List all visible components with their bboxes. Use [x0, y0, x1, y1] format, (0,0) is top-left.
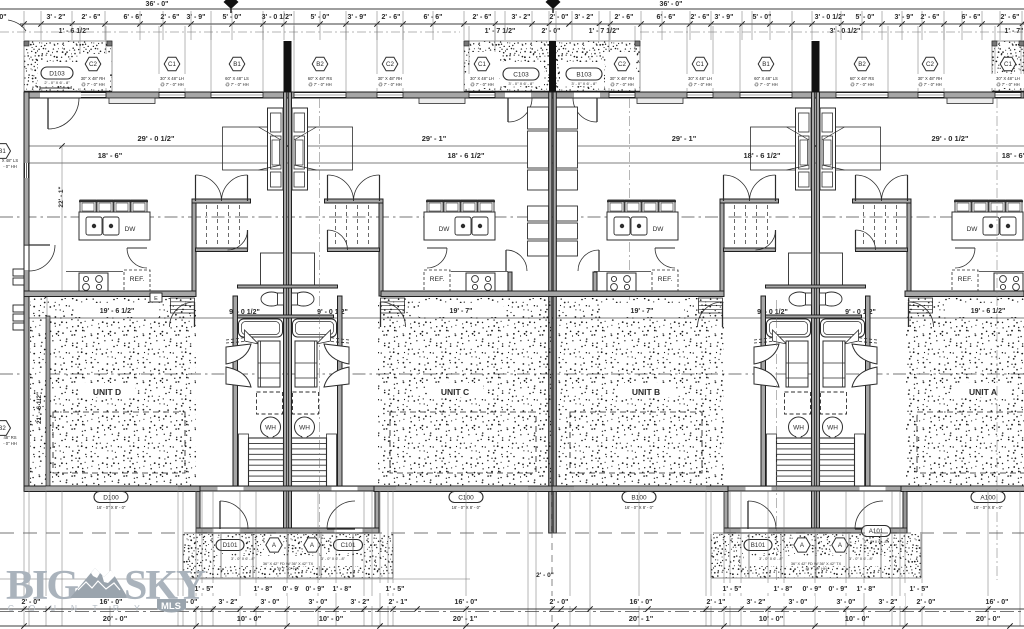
- svg-text:0' - 9": 0' - 9": [306, 586, 325, 593]
- svg-text:@ 7' - 0" HH: @ 7' - 0" HH: [160, 82, 183, 87]
- svg-text:30" X 48" RH: 30" X 48" RH: [81, 76, 106, 81]
- svg-text:3' - 2": 3' - 2": [879, 599, 898, 606]
- svg-text:@ 7' - 0" HH: @ 7' - 0" HH: [308, 82, 331, 87]
- svg-text:1' - 7 1/2": 1' - 7 1/2": [589, 28, 620, 35]
- svg-text:20' - 0": 20' - 0": [976, 614, 1001, 623]
- svg-text:@ 7' - 0" HH: @ 7' - 0" HH: [81, 82, 104, 87]
- svg-text:3' - 0": 3' - 0": [789, 599, 808, 606]
- svg-text:UNIT B: UNIT B: [632, 387, 660, 397]
- svg-text:@ 7' - 0" HH: @ 7' - 0" HH: [610, 82, 633, 87]
- svg-text:REF.: REF.: [130, 276, 145, 283]
- svg-text:16' - 0": 16' - 0": [455, 599, 478, 606]
- svg-text:C1: C1: [168, 61, 176, 68]
- svg-text:3' - 9": 3' - 9": [895, 14, 914, 21]
- svg-text:2' - 0": 2' - 0": [917, 599, 936, 606]
- svg-text:3' - 0" X 6' - 8": 3' - 0" X 6' - 8": [849, 557, 874, 561]
- svg-text:D103: D103: [49, 70, 65, 77]
- svg-text:20' - 0": 20' - 0": [103, 614, 128, 623]
- svg-text:20' - 1": 20' - 1": [453, 614, 478, 623]
- svg-text:60" X 48" RS: 60" X 48" RS: [850, 76, 875, 81]
- svg-text:B101: B101: [751, 542, 766, 549]
- svg-text:1' - 5": 1' - 5": [386, 586, 405, 593]
- svg-text:3' - 2": 3' - 2": [351, 599, 370, 606]
- svg-text:2' - 6": 2' - 6": [382, 14, 401, 21]
- svg-text:3' - 0" X 6' - 8": 3' - 0" X 6' - 8": [759, 557, 784, 561]
- svg-text:E: E: [154, 296, 158, 302]
- svg-text:@ 7' - 0" HH: @ 7' - 0" HH: [918, 82, 941, 87]
- svg-text:10' - 0": 10' - 0": [845, 614, 870, 623]
- svg-text:@ 7' - 0" HH: @ 7' - 0" HH: [470, 82, 493, 87]
- svg-text:@ 7' - 0" HH: @ 7' - 0" HH: [378, 82, 401, 87]
- svg-text:2' - 6": 2' - 6": [82, 14, 101, 21]
- svg-text:@ 7' - 0" HH: @ 7' - 0" HH: [225, 82, 248, 87]
- svg-text:REF.: REF.: [430, 276, 445, 283]
- svg-text:6' - 6": 6' - 6": [657, 14, 676, 21]
- svg-text:2' - 6": 2' - 6": [161, 14, 180, 21]
- svg-text:6' - 6": 6' - 6": [962, 14, 981, 21]
- svg-text:C101: C101: [341, 542, 356, 549]
- svg-text:60" X 48" RS: 60" X 48" RS: [308, 76, 333, 81]
- svg-text:5' - 0": 5' - 0": [753, 14, 772, 21]
- svg-text:C2: C2: [386, 61, 394, 68]
- svg-text:3' - 9": 3' - 9": [715, 14, 734, 21]
- svg-text:1' - 5": 1' - 5": [723, 586, 742, 593]
- svg-text:22' - 1": 22' - 1": [58, 186, 65, 207]
- svg-text:3' - 0 1/2": 3' - 0 1/2": [262, 14, 293, 21]
- svg-text:C103: C103: [513, 71, 529, 78]
- svg-text:WH: WH: [265, 424, 276, 431]
- svg-text:60" X 48" LS: 60" X 48" LS: [754, 76, 778, 81]
- svg-text:1' - 8": 1' - 8": [333, 586, 352, 593]
- svg-text:3' - 0" X 6' - 8": 3' - 0" X 6' - 8": [864, 540, 889, 544]
- svg-text:3' - 0" X 6' - 8": 3' - 0" X 6' - 8": [231, 557, 256, 561]
- svg-text:30" X 48" RH: 30" X 48" RH: [610, 76, 635, 81]
- svg-text:D100: D100: [103, 494, 119, 501]
- svg-text:C2: C2: [89, 61, 97, 68]
- svg-text:5' - 0": 5' - 0": [856, 14, 875, 21]
- svg-text:B1: B1: [762, 61, 770, 68]
- svg-text:30" X 48" RH: 30" X 48" RH: [378, 76, 403, 81]
- svg-text:30" X 48" RH: 30" X 48" RH: [918, 76, 943, 81]
- svg-text:B1: B1: [0, 148, 6, 155]
- svg-text:16' - 0" X 8' - 0": 16' - 0" X 8' - 0": [625, 505, 654, 510]
- svg-text:2' - 6": 2' - 6": [691, 14, 710, 21]
- svg-text:30" X 48" LH: 30" X 48" LH: [688, 76, 712, 81]
- svg-text:3' - 0" X 6' - 8": 3' - 0" X 6' - 8": [321, 557, 346, 561]
- svg-text:0' - 9": 0' - 9": [829, 586, 848, 593]
- svg-text:19' - 7": 19' - 7": [631, 308, 654, 315]
- svg-text:REF.: REF.: [658, 276, 673, 283]
- svg-text:16' - 0": 16' - 0": [986, 599, 1009, 606]
- svg-text:B2: B2: [316, 61, 324, 68]
- svg-text:3' - 2": 3' - 2": [575, 14, 594, 21]
- svg-text:@ 7' - 0" HH: @ 7' - 0" HH: [996, 82, 1019, 87]
- svg-text:C: C: [8, 603, 14, 613]
- svg-text:DW: DW: [653, 226, 665, 233]
- svg-text:R: R: [113, 603, 119, 613]
- svg-text:A101: A101: [869, 528, 884, 535]
- svg-text:- 0" HH: - 0" HH: [3, 441, 17, 446]
- svg-text:- 0" HH: - 0" HH: [3, 164, 17, 169]
- svg-text:29' - 0 1/2": 29' - 0 1/2": [137, 134, 174, 143]
- svg-text:B103: B103: [576, 71, 592, 78]
- svg-text:@ 7' - 0" HH: @ 7' - 0" HH: [754, 82, 777, 87]
- svg-text:16' - 0" X 8' - 0": 16' - 0" X 8' - 0": [97, 505, 126, 510]
- svg-text:2' - 6": 2' - 6": [921, 14, 940, 21]
- svg-text:10' - 0": 10' - 0": [759, 614, 784, 623]
- svg-text:19' - 6 1/2": 19' - 6 1/2": [971, 308, 1006, 315]
- svg-text:18' - 6 1/2": 18' - 6 1/2": [743, 151, 780, 160]
- svg-text:16' - 0" X 8' - 0": 16' - 0" X 8' - 0": [452, 505, 481, 510]
- svg-text:30" X 48" LH: 30" X 48" LH: [996, 76, 1020, 81]
- svg-text:UNIT C: UNIT C: [441, 387, 469, 397]
- svg-text:2' - 6": 2' - 6": [615, 14, 634, 21]
- svg-text:1' - 7": 1' - 7": [1005, 28, 1024, 35]
- svg-text:29' - 1": 29' - 1": [672, 134, 697, 143]
- svg-text:WH: WH: [827, 424, 838, 431]
- svg-text:29' - 1": 29' - 1": [422, 134, 447, 143]
- svg-text:D101: D101: [223, 542, 238, 549]
- svg-text:2' - 0": 2' - 0": [550, 599, 569, 606]
- svg-text:1' - 8": 1' - 8": [857, 586, 876, 593]
- svg-text:18' - 6": 18' - 6": [98, 151, 123, 160]
- svg-text:X 48" LS: X 48" LS: [2, 158, 19, 163]
- svg-text:10' - 0": 10' - 0": [319, 614, 344, 623]
- svg-text:36' - 0": 36' - 0": [146, 1, 169, 8]
- svg-text:2' - 6": 2' - 6": [1001, 14, 1020, 21]
- svg-text:1' - 5": 1' - 5": [910, 586, 929, 593]
- svg-text:3' - 0" X 6' - 8": 3' - 0" X 6' - 8": [571, 81, 597, 86]
- svg-text:3' - 0": 3' - 0": [837, 599, 856, 606]
- svg-text:U: U: [50, 603, 56, 613]
- svg-text:BIG: BIG: [6, 563, 78, 609]
- svg-text:2' - 0": 2' - 0": [550, 14, 569, 21]
- svg-text:30" X 48" LH: 30" X 48" LH: [160, 76, 184, 81]
- svg-text:1' - 6 1/2": 1' - 6 1/2": [59, 28, 90, 35]
- svg-text:B1: B1: [233, 61, 241, 68]
- svg-text:3' - 9": 3' - 9": [187, 14, 206, 21]
- svg-text:UNIT D: UNIT D: [93, 387, 121, 397]
- svg-text:36' - 0": 36' - 0": [660, 1, 683, 8]
- svg-text:3' - 2": 3' - 2": [47, 14, 66, 21]
- svg-text:3' - 9": 3' - 9": [348, 14, 367, 21]
- svg-text:1' - 8": 1' - 8": [774, 586, 793, 593]
- svg-text:Y: Y: [134, 603, 140, 613]
- svg-text:C2: C2: [618, 61, 626, 68]
- svg-text:3' - 0" X 6' - 8": 3' - 0" X 6' - 8": [508, 81, 534, 86]
- svg-text:DW: DW: [125, 226, 137, 233]
- svg-text:3' - 0 1/2": 3' - 0 1/2": [815, 14, 846, 21]
- svg-text:WH: WH: [299, 424, 310, 431]
- svg-text:DW: DW: [967, 226, 979, 233]
- svg-text:O: O: [29, 603, 36, 613]
- svg-text:2' - 0" X 6' - 8": 2' - 0" X 6' - 8": [44, 80, 70, 85]
- svg-text:DW: DW: [439, 226, 451, 233]
- svg-text:3' - 2": 3' - 2": [219, 599, 238, 606]
- svg-text:C1: C1: [1004, 61, 1012, 68]
- svg-text:@ 7' - 0" HH: @ 7' - 0" HH: [688, 82, 711, 87]
- svg-text:19' - 6 1/2": 19' - 6 1/2": [100, 308, 135, 315]
- svg-text:48" RS: 48" RS: [3, 435, 16, 440]
- svg-text:18' - 6": 18' - 6": [1002, 151, 1024, 160]
- svg-text:16' - 0" X 8' - 0": 16' - 0" X 8' - 0": [974, 505, 1003, 510]
- svg-text:0' - 9": 0' - 9": [283, 586, 302, 593]
- svg-text:18' - 6 1/2": 18' - 6 1/2": [447, 151, 484, 160]
- svg-text:B2: B2: [858, 61, 866, 68]
- svg-text:20' - 1": 20' - 1": [629, 614, 654, 623]
- svg-text:0": 0": [0, 14, 7, 21]
- svg-text:UNIT A: UNIT A: [969, 387, 997, 397]
- svg-text:2' - 1": 2' - 1": [389, 599, 408, 606]
- svg-text:16' - 0": 16' - 0": [630, 599, 653, 606]
- svg-text:19' - 7": 19' - 7": [450, 308, 473, 315]
- svg-text:3' - 0": 3' - 0": [309, 599, 328, 606]
- svg-text:30" X 48" LH: 30" X 48" LH: [470, 76, 494, 81]
- svg-text:3' - 2": 3' - 2": [747, 599, 766, 606]
- svg-text:WH: WH: [793, 424, 804, 431]
- svg-text:6' - 6": 6' - 6": [124, 14, 143, 21]
- svg-text:N: N: [71, 603, 77, 613]
- svg-text:1' - 7 1/2": 1' - 7 1/2": [485, 28, 516, 35]
- svg-text:3' - 2": 3' - 2": [512, 14, 531, 21]
- svg-text:T: T: [92, 603, 97, 613]
- svg-text:3' - 0": 3' - 0": [261, 599, 280, 606]
- svg-text:60" X 48" LS: 60" X 48" LS: [225, 76, 249, 81]
- svg-text:@ 7' - 0" HH: @ 7' - 0" HH: [850, 82, 873, 87]
- svg-text:2' - 1": 2' - 1": [707, 599, 726, 606]
- svg-text:1' - 8": 1' - 8": [254, 586, 273, 593]
- svg-text:2' - 6": 2' - 6": [473, 14, 492, 21]
- svg-text:REF.: REF.: [958, 276, 973, 283]
- svg-text:2' - 0": 2' - 0": [536, 572, 554, 579]
- svg-text:C2: C2: [926, 61, 934, 68]
- svg-text:MLS: MLS: [161, 601, 181, 612]
- svg-text:29' - 0 1/2": 29' - 0 1/2": [931, 134, 968, 143]
- svg-text:B2: B2: [0, 425, 6, 432]
- svg-text:0' - 9": 0' - 9": [803, 586, 822, 593]
- svg-text:2' - 0": 2' - 0": [542, 28, 561, 35]
- svg-text:C1: C1: [696, 61, 704, 68]
- svg-text:C1: C1: [478, 61, 486, 68]
- svg-text:3' - 0 1/2": 3' - 0 1/2": [830, 28, 861, 35]
- svg-text:10' - 0": 10' - 0": [237, 614, 262, 623]
